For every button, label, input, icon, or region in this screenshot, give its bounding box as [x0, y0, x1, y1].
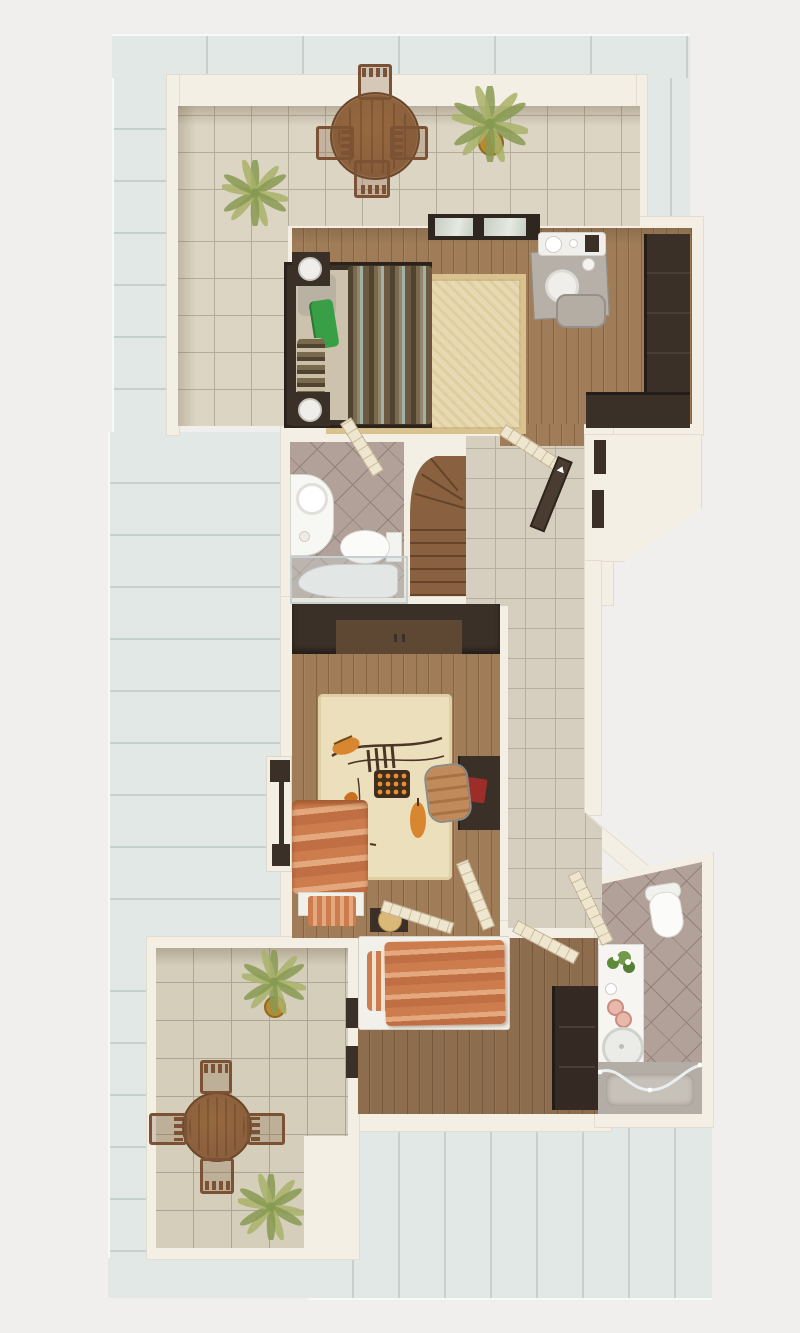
vanity-sink — [290, 474, 334, 556]
cosmetic-ring — [615, 1011, 632, 1028]
upper-terrace-shadow-l — [178, 106, 196, 426]
nightstand-lamp — [298, 257, 322, 281]
bedside-unit — [346, 998, 358, 1028]
wardrobe-handle — [394, 634, 397, 642]
bedside-unit — [346, 1046, 358, 1078]
wardrobe-shelf-line — [559, 1066, 595, 1068]
desk-tray — [538, 232, 606, 256]
table-planks — [189, 1097, 245, 1157]
tub-glass-curve — [598, 1062, 702, 1114]
studio-desk-chair — [556, 294, 606, 328]
lower-terrace-shadow — [156, 948, 348, 966]
single-bed — [358, 936, 510, 1030]
door-handle-mark — [556, 465, 566, 474]
tray-dot — [569, 239, 578, 248]
toilet-bowl — [647, 890, 686, 940]
entry-frame-post — [592, 490, 604, 528]
patio-chair-north — [358, 64, 392, 100]
staircase — [410, 456, 466, 596]
roof-deck-left-upper — [112, 78, 172, 432]
flower-bloom — [625, 959, 631, 965]
flower-bloom — [613, 955, 619, 961]
living-window-rail — [279, 782, 284, 844]
wardrobe-handle — [402, 634, 405, 642]
living-window-frame — [270, 760, 290, 782]
patio-chair-west — [149, 1113, 187, 1145]
patio-chair-east — [390, 126, 428, 160]
drain — [619, 1044, 624, 1049]
patio-chair-east — [247, 1113, 285, 1145]
soap-cup — [299, 531, 310, 542]
patio-chair-south — [200, 1158, 234, 1194]
patio-chair-west — [316, 126, 354, 160]
sink-bowl — [296, 483, 328, 515]
plant-pot — [264, 996, 286, 1018]
tub-basin — [298, 564, 398, 598]
roof-deck-bottom-left — [108, 1258, 308, 1298]
shower-tub — [290, 556, 408, 604]
patio-chair-south — [354, 160, 390, 198]
floorplan-render — [0, 0, 800, 1333]
wardrobe-shelf-line — [559, 1026, 595, 1028]
stair-treads — [410, 518, 466, 596]
living-window-frame — [272, 844, 290, 866]
nightstand-lamp — [298, 398, 322, 422]
lower-wardrobe — [552, 986, 599, 1110]
double-bed — [284, 232, 432, 428]
flower-vase — [607, 951, 635, 977]
wardrobe-panel — [336, 620, 462, 654]
corner-bathtub — [598, 1062, 702, 1114]
plant-pot — [478, 130, 504, 156]
window-pane — [435, 218, 473, 236]
bed-duvet-orange — [384, 940, 505, 1026]
bath-vanity — [598, 944, 644, 1070]
entry-frame-post — [594, 440, 606, 474]
roof-deck-bottom-main — [308, 1124, 712, 1300]
cosmetic-cup — [605, 983, 617, 995]
corner-sofa-bottom — [586, 392, 690, 428]
pillow-striped — [297, 338, 325, 396]
hallway-outer-wall — [584, 560, 602, 816]
patio-chair-north — [200, 1060, 232, 1094]
studio-window-frame — [428, 214, 540, 240]
round-patio-table — [182, 1092, 252, 1162]
living-wardrobe — [292, 604, 500, 654]
desk-cup — [582, 258, 596, 272]
toilet — [642, 881, 688, 940]
chaise-cushion — [308, 896, 356, 926]
office-chair — [425, 764, 471, 822]
chaise-lounge — [292, 800, 368, 894]
window-pane — [484, 218, 526, 236]
tray-plate — [545, 236, 562, 253]
corner-sofa-right — [644, 234, 690, 396]
tray-box — [585, 235, 599, 252]
bed-duvet-striped — [348, 266, 432, 424]
roof-deck-left-main — [108, 432, 289, 940]
